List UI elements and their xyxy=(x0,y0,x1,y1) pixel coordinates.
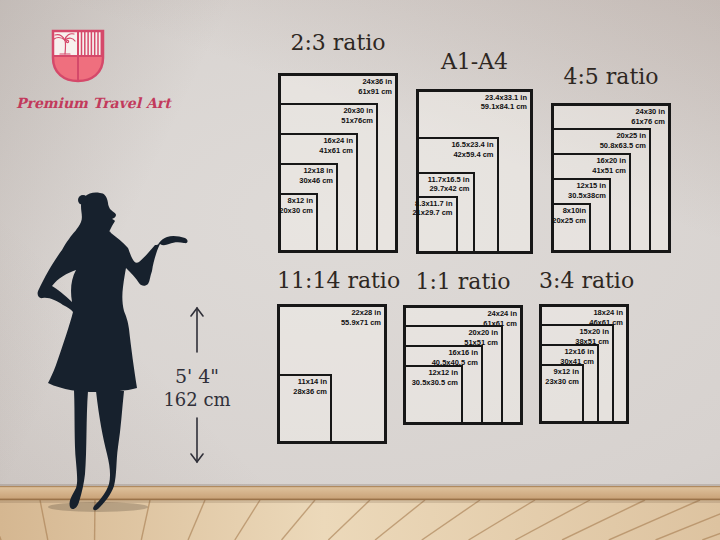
chart-title-1-1-ratio: 1:1 ratio xyxy=(403,269,523,295)
size-label: 22x28 in55.9x71 cm xyxy=(341,308,381,327)
size-label: 12x15 in30.5x38cm xyxy=(568,181,606,200)
height-centimeters: 162 cm xyxy=(157,389,237,410)
size-label: 23.4x33.1 in59.1x84.1 cm xyxy=(481,93,527,112)
size-label: 11.7x16.5 in29.7x42 cm xyxy=(428,175,470,194)
size-label: 24x36 in61x91 cm xyxy=(358,77,392,96)
size-rect-1-1-4: 12x12 in30.5x30.5 cm xyxy=(403,365,463,425)
size-rect-a1-a4-4: 8.3x11.7 in21x29.7 cm xyxy=(416,196,458,255)
size-label: 9x12 in23x30 cm xyxy=(545,367,579,386)
size-label: 8x10in20x25 cm xyxy=(552,206,586,225)
size-label: 16.5x23.4 in42x59.4 cm xyxy=(451,140,493,159)
height-feet-inches: 5' 4" xyxy=(157,365,237,387)
size-label: 24x30 in61x76 cm xyxy=(631,107,665,126)
chart-title-4-5-ratio: 4:5 ratio xyxy=(551,64,671,90)
size-label: 16x20 in41x51 cm xyxy=(592,156,626,175)
arrow-down-icon xyxy=(191,418,203,462)
size-rect-4-5-5: 8x10in20x25 cm xyxy=(551,203,591,253)
arrow-up-icon xyxy=(191,308,203,352)
size-label: 12x12 in30.5x30.5 cm xyxy=(412,368,458,387)
chart-title-11-14-ratio: 11:14 ratio xyxy=(277,268,387,294)
chart-title-a1-a4: A1-A4 xyxy=(416,49,533,75)
size-label: 20x30 in51x76cm xyxy=(341,106,373,125)
chart-title-2-3-ratio: 2:3 ratio xyxy=(278,30,398,56)
shield-stripes xyxy=(82,31,102,56)
size-label: 11x14 in28x36 cm xyxy=(293,377,327,396)
size-label: 12x18 in30x46 cm xyxy=(299,166,333,185)
size-label: 16x24 in41x61 cm xyxy=(319,136,353,155)
size-rect-11-14-2: 11x14 in28x36 cm xyxy=(277,374,332,444)
size-label: 20x25 in50.8x63.5 cm xyxy=(600,131,646,150)
size-rect-2-3-5: 8x12 in20x30 cm xyxy=(278,193,318,253)
brand-name: Premium Travel Art xyxy=(16,95,152,111)
size-rect-3-4-4: 9x12 in23x30 cm xyxy=(539,364,584,424)
size-chart-poster-scene: Premium Travel Art 5' 4" 162 cm 2:3 rati… xyxy=(0,0,720,540)
size-label: 8x12 in20x30 cm xyxy=(279,196,313,215)
chart-title-3-4-ratio: 3:4 ratio xyxy=(539,268,629,294)
size-label: 8.3x11.7 in21x29.7 cm xyxy=(412,199,452,218)
brand-shield-logo xyxy=(50,28,106,85)
